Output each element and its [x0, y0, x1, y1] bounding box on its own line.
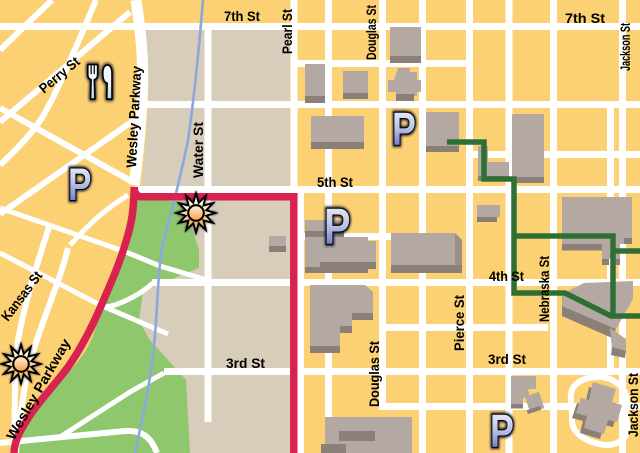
svg-text:Nebraska St: Nebraska St [536, 256, 552, 322]
svg-text:7th St: 7th St [565, 10, 605, 26]
svg-text:4th St: 4th St [489, 268, 524, 284]
svg-text:P: P [490, 406, 514, 453]
svg-text:P: P [324, 198, 351, 255]
svg-text:Douglas St: Douglas St [366, 341, 382, 407]
svg-text:7th St: 7th St [224, 8, 260, 24]
svg-text:Water St: Water St [190, 122, 206, 178]
svg-text:Pierce St: Pierce St [451, 295, 467, 351]
svg-text:Jackson St: Jackson St [625, 373, 640, 437]
svg-text:Douglas St: Douglas St [363, 5, 379, 60]
svg-text:Jackson St: Jackson St [617, 23, 633, 71]
svg-text:P: P [392, 104, 416, 155]
svg-text:5th St: 5th St [317, 174, 353, 190]
svg-text:3rd St: 3rd St [488, 351, 526, 367]
svg-text:3rd St: 3rd St [226, 355, 265, 371]
svg-text:P: P [68, 159, 91, 210]
svg-text:Pearl St: Pearl St [279, 9, 295, 54]
